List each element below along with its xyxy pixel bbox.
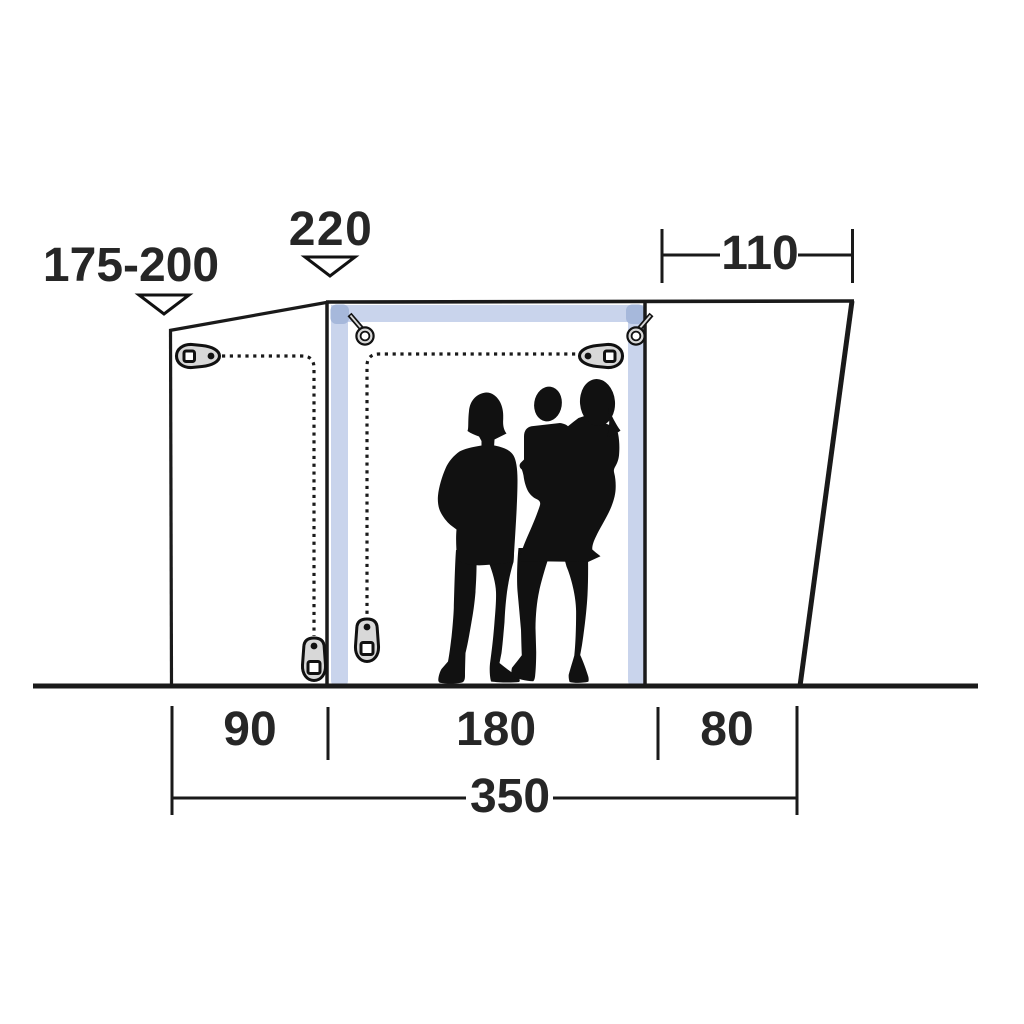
svg-text:80: 80 <box>700 703 753 756</box>
svg-text:220: 220 <box>289 203 374 256</box>
svg-text:180: 180 <box>456 703 536 756</box>
svg-text:175-200: 175-200 <box>43 239 219 292</box>
svg-text:110: 110 <box>721 227 798 280</box>
svg-text:350: 350 <box>470 770 550 823</box>
svg-text:90: 90 <box>223 703 276 756</box>
